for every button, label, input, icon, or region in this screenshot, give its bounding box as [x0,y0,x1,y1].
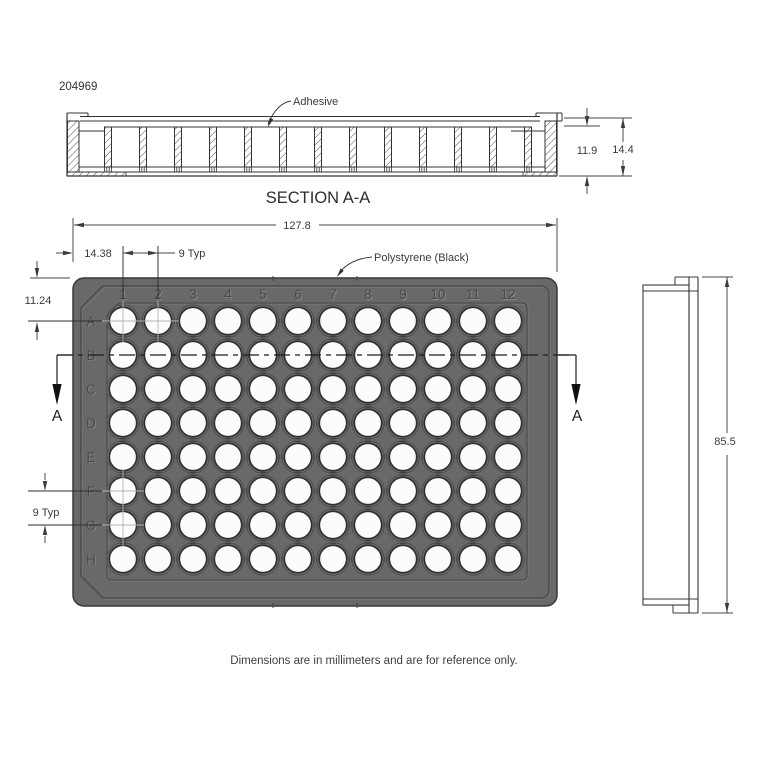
dim-overall-length: 85.5 [714,436,735,448]
column-label: 10 [430,287,445,302]
well-wall-hatched [315,127,322,167]
well [494,545,521,572]
left-base-hatched [67,172,126,176]
material-leader [339,257,372,273]
well [284,511,311,538]
well [424,307,451,334]
well [109,375,136,402]
drawing-sheet: 204969 Adhesive 11.9 14.4 SECTION A-A 12… [0,0,773,773]
cut-arrow-left [52,384,61,405]
well [144,375,171,402]
wall-foot [214,167,216,172]
well [144,409,171,436]
dim-total-height: 14.4 [612,144,633,156]
well [494,477,521,504]
wall-foot [494,167,496,172]
well [494,409,521,436]
wall-foot [455,167,457,172]
adhesive-label: Adhesive [293,96,338,108]
well-wall-hatched [245,127,252,167]
well [354,477,381,504]
well [424,511,451,538]
well [424,375,451,402]
wall-foot [109,167,111,172]
wall-foot [144,167,146,172]
well [319,409,346,436]
well [424,443,451,470]
well [214,443,241,470]
well [284,545,311,572]
well [389,443,416,470]
well [249,375,276,402]
wall-foot [525,167,527,172]
well [319,443,346,470]
well-wall-hatched [525,127,532,167]
wall-foot [490,167,492,172]
well [459,409,486,436]
well [214,409,241,436]
well [284,409,311,436]
wall-foot [280,167,282,172]
section-view [67,101,562,176]
well [319,545,346,572]
well [459,307,486,334]
dim-cavity-height: 11.9 [577,145,598,157]
well [354,511,381,538]
well [214,375,241,402]
arrowhead [74,223,84,227]
plan-view: 112233445566778899101011111212AABBCCDDEE… [57,276,574,608]
well [494,375,521,402]
row-label: C [86,382,96,397]
well-wall-hatched [105,127,112,167]
column-label: 3 [189,287,197,302]
well [389,307,416,334]
well-wall-hatched [350,127,357,167]
well-wall-hatched [280,127,287,167]
technical-drawing: 204969 Adhesive 11.9 14.4 SECTION A-A 12… [0,0,773,773]
well-wall-hatched [140,127,147,167]
column-label: 8 [364,287,372,302]
well-wall-hatched [385,127,392,167]
column-label: 9 [399,287,407,302]
well [459,443,486,470]
well [319,477,346,504]
well [144,443,171,470]
well [424,477,451,504]
well [459,511,486,538]
well [389,511,416,538]
side-body [643,285,689,605]
well [389,545,416,572]
column-label: 4 [224,287,232,302]
left-wall-hatched [68,121,80,172]
side-view [643,277,698,613]
well [319,511,346,538]
wall-foot [245,167,247,172]
column-label: 12 [500,287,515,302]
well [284,477,311,504]
dim-first-column-offset: 14.38 [84,248,112,260]
well-wall-hatched [455,127,462,167]
wall-foot [385,167,387,172]
well [354,443,381,470]
well [459,477,486,504]
well [249,545,276,572]
well [214,307,241,334]
well [249,477,276,504]
well [319,307,346,334]
well-wall-hatched [210,127,217,167]
well [214,545,241,572]
well-wall-hatched [420,127,427,167]
right-base-hatched [523,172,557,176]
right-wall-hatched [545,121,557,172]
well [354,307,381,334]
dim-first-row-offset: 11.24 [25,295,52,307]
wall-foot [210,167,212,172]
well [459,375,486,402]
arrowhead [546,223,556,227]
wall-foot [424,167,426,172]
well [179,545,206,572]
wall-foot [350,167,352,172]
well [214,477,241,504]
well [109,409,136,436]
wall-foot [140,167,142,172]
arrowhead [43,481,47,491]
well [284,307,311,334]
well [389,375,416,402]
well [284,443,311,470]
well [179,511,206,538]
well [284,375,311,402]
arrowhead [585,116,589,126]
well [179,477,206,504]
arrowhead [35,322,39,332]
column-label: 7 [329,287,337,302]
row-label: H [86,552,96,567]
well [354,375,381,402]
well [354,545,381,572]
well [494,443,521,470]
arrowhead [621,166,625,176]
arrowhead [585,176,589,186]
well [109,443,136,470]
arrowhead [63,251,73,255]
wall-foot [284,167,286,172]
column-label: 5 [259,287,267,302]
part-number: 204969 [59,81,97,93]
well [144,511,171,538]
footnote: Dimensions are in millimeters and are fo… [230,655,517,667]
well [144,477,171,504]
arrowhead [148,251,158,255]
well [179,443,206,470]
dim-row-pitch: 9 Typ [33,507,60,519]
arrowhead [621,118,625,128]
row-label: E [86,450,95,465]
well [389,477,416,504]
well [249,443,276,470]
arrowhead [123,251,133,255]
well [424,409,451,436]
arrowhead [725,277,729,287]
cut-arrow-right [571,384,580,405]
well [214,511,241,538]
arrowhead [725,603,729,613]
wall-foot [179,167,181,172]
section-title: SECTION A-A [266,189,371,207]
well [319,375,346,402]
well [249,307,276,334]
well [249,409,276,436]
column-label: 11 [466,287,480,302]
wall-foot [319,167,321,172]
wall-foot [175,167,177,172]
row-label: D [86,416,96,431]
well [109,545,136,572]
well-wall-hatched [490,127,497,167]
arrowhead [35,268,39,278]
wall-foot [389,167,391,172]
wall-foot [105,167,107,172]
material-label: Polystyrene (Black) [374,252,469,264]
section-cut-label-right: A [572,408,583,425]
wall-foot [420,167,422,172]
wall-foot [249,167,251,172]
wall-foot [354,167,356,172]
wall-foot [459,167,461,172]
section-cut-label-left: A [52,408,63,425]
well [459,545,486,572]
well [494,307,521,334]
material-leader-arrow [335,268,343,278]
well [179,307,206,334]
well [179,375,206,402]
wall-foot [529,167,531,172]
well-wall-hatched [175,127,182,167]
dim-overall-width: 127.8 [283,220,311,232]
well [494,511,521,538]
well [424,545,451,572]
well [144,545,171,572]
dim-column-pitch: 9 Typ [179,248,206,260]
arrowhead [43,525,47,535]
column-label: 6 [294,287,302,302]
well [389,409,416,436]
wall-foot [315,167,317,172]
well [354,409,381,436]
well [249,511,276,538]
well [179,409,206,436]
adhesive-leader-arrow [266,118,273,128]
